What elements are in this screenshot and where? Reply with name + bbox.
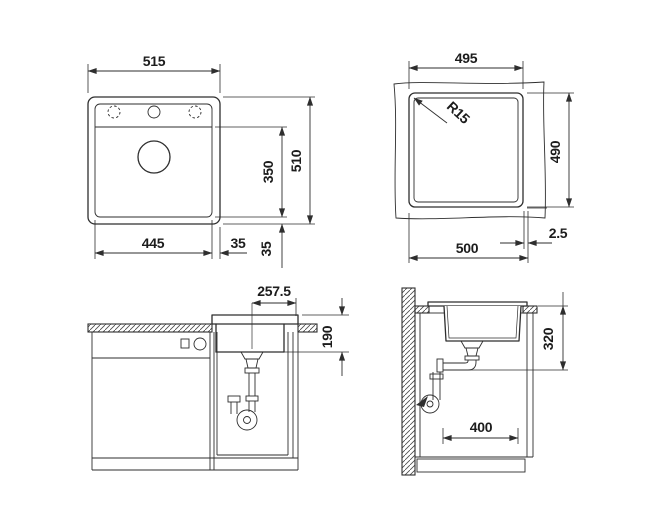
dim-edge-bottom: 35	[258, 241, 274, 256]
cabinet-knob-symbol	[194, 338, 206, 350]
dim-overall-width: 515	[143, 53, 166, 69]
dim-center-to-edge: 257.5	[257, 283, 291, 299]
cutout-view: R15 495 490 500 2.5	[394, 50, 574, 263]
plinth-side	[417, 459, 525, 472]
dim-side-clearance: 2.5	[549, 225, 568, 241]
dim-bowl-width: 445	[142, 235, 165, 251]
dim-edge-right: 35	[231, 235, 246, 251]
cabinet-front	[92, 332, 298, 470]
wall-section	[402, 288, 415, 475]
worktop-left-section	[88, 324, 212, 332]
dim-bowl-length: 400	[470, 419, 493, 435]
dim-underside-width: 500	[456, 240, 479, 256]
dim-bowl-height: 350	[260, 160, 276, 183]
outlet-direction-arrow	[416, 396, 428, 407]
side-view: 320 400	[402, 288, 568, 475]
drain-trap-side	[416, 341, 483, 413]
worktop-right-section	[298, 324, 317, 332]
bowl-section	[444, 306, 521, 341]
technical-drawing-page: 515 510 350 35 445 35 R15	[0, 0, 648, 530]
sink-technical-drawing: 515 510 350 35 445 35 R15	[0, 0, 648, 530]
sink-outer-outline	[88, 97, 220, 224]
sink-rim-front	[212, 315, 298, 324]
dim-cutout-height: 490	[547, 140, 563, 163]
cabinet-vent-symbol	[181, 339, 189, 348]
sink-rim-side	[428, 302, 527, 306]
front-view: 257.5 190	[88, 283, 349, 470]
dim-bowl-depth: 190	[319, 325, 335, 348]
dim-outlet-height: 320	[540, 327, 556, 350]
dim-cutout-width: 495	[455, 50, 478, 66]
top-view: 515 510 350 35 445 35	[88, 53, 315, 268]
dim-overall-height: 510	[288, 149, 304, 172]
